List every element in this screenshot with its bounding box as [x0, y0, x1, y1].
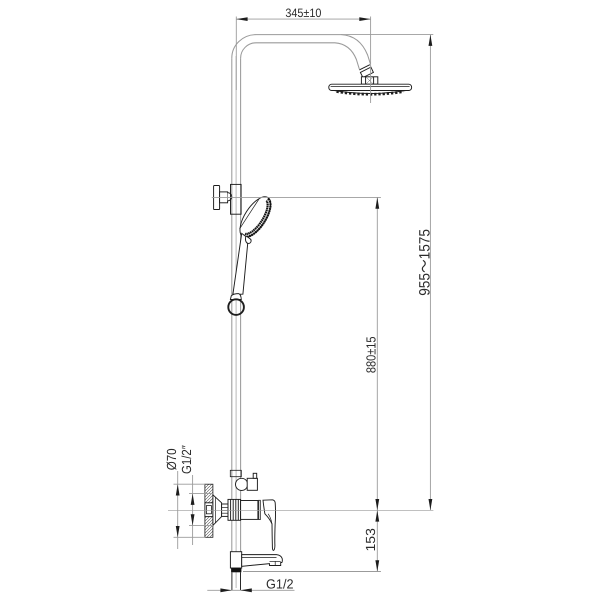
- svg-text:345±10: 345±10: [285, 6, 321, 20]
- svg-text:Ø70: Ø70: [164, 448, 179, 470]
- svg-text:G1/2″: G1/2″: [179, 445, 194, 474]
- svg-text:G1/2: G1/2: [266, 576, 294, 591]
- svg-text:955～1575: 955～1575: [416, 229, 433, 296]
- svg-text:153: 153: [363, 528, 378, 551]
- svg-text:880±15: 880±15: [364, 337, 379, 374]
